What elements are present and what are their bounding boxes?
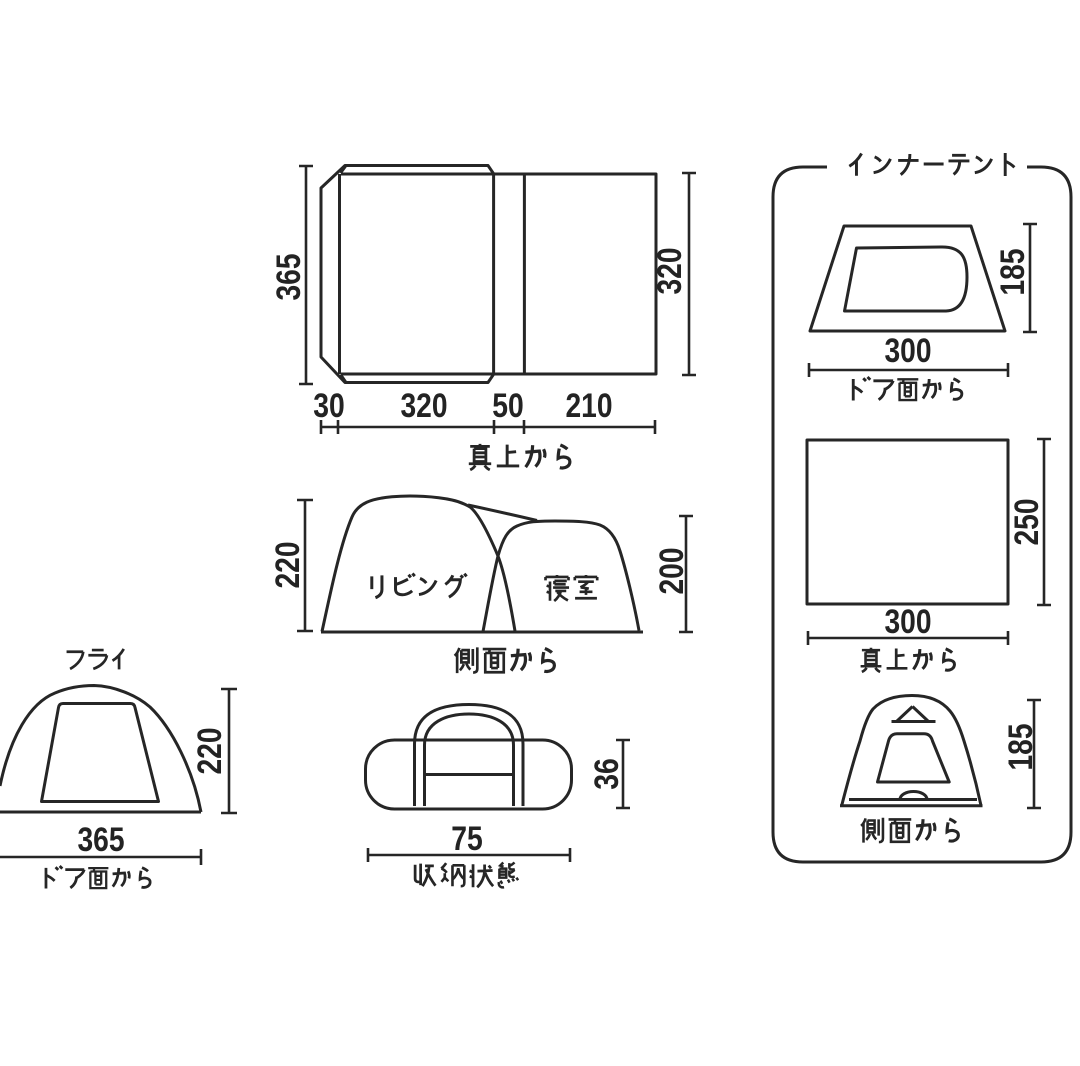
svg-text:200: 200: [653, 548, 691, 595]
svg-text:250: 250: [1008, 499, 1046, 546]
svg-text:185: 185: [1002, 724, 1040, 771]
svg-text:50: 50: [492, 387, 524, 425]
svg-text:220: 220: [269, 542, 307, 589]
svg-text:320: 320: [401, 387, 448, 425]
svg-text:300: 300: [885, 332, 932, 370]
svg-text:365: 365: [270, 254, 308, 301]
svg-text:75: 75: [451, 820, 483, 858]
svg-text:185: 185: [994, 249, 1032, 296]
svg-text:36: 36: [588, 758, 626, 790]
svg-text:320: 320: [651, 248, 689, 295]
svg-text:210: 210: [566, 387, 613, 425]
svg-text:365: 365: [78, 821, 125, 859]
svg-text:300: 300: [885, 603, 932, 641]
svg-text:220: 220: [191, 728, 229, 775]
svg-text:30: 30: [313, 387, 345, 425]
